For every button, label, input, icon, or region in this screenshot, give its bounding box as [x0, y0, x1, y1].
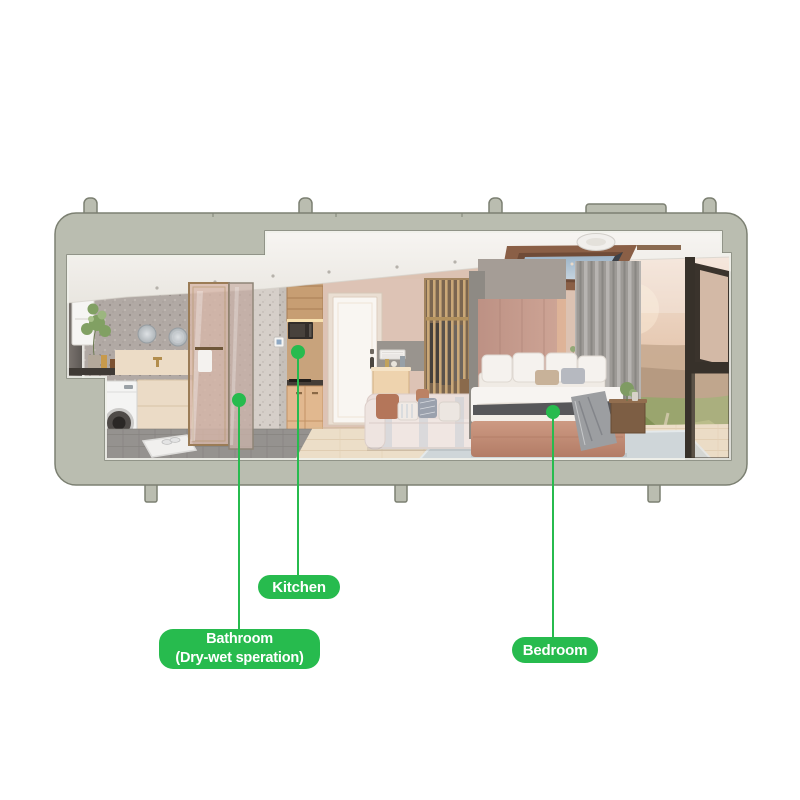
callout-line-kitchen [297, 352, 299, 575]
microwave [288, 322, 313, 339]
bathroom-label-line1: Bathroom [206, 630, 273, 649]
bedroom-label-text: Bedroom [523, 642, 587, 659]
callout-dot-kitchen [291, 345, 305, 359]
bedroom-zone [469, 257, 731, 460]
ceiling-lamp [577, 234, 615, 251]
callout-dot-bathroom [232, 393, 246, 407]
callout-dot-bedroom [546, 405, 560, 419]
callout-label-bedroom: Bedroom [512, 637, 598, 663]
light-switch [274, 337, 284, 347]
callout-line-bedroom [552, 412, 554, 637]
kitchen-label-text: Kitchen [272, 579, 326, 596]
shower-glass-door [189, 283, 253, 449]
upper-kitchen-cabinet [287, 286, 323, 322]
callout-label-kitchen: Kitchen [258, 575, 340, 599]
interior-scene [67, 231, 731, 460]
callout-line-bathroom [238, 400, 240, 629]
vanity-cabinet [137, 380, 193, 433]
callout-label-bathroom: Bathroom (Dry-wet speration) [159, 629, 320, 669]
cutaway-figure: Kitchen Bathroom (Dry-wet speration) Bed… [0, 0, 800, 800]
cooktop [289, 379, 311, 382]
bathroom-label-line2: (Dry-wet speration) [175, 649, 303, 668]
backsplash [115, 350, 193, 375]
open-window-sash [685, 257, 731, 460]
